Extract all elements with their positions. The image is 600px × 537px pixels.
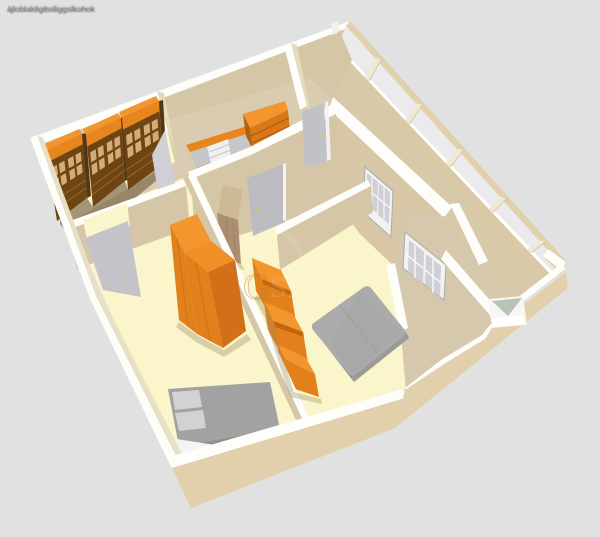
svg-text:SI: SI [270, 271, 297, 304]
svg-text:G: G [243, 267, 270, 308]
